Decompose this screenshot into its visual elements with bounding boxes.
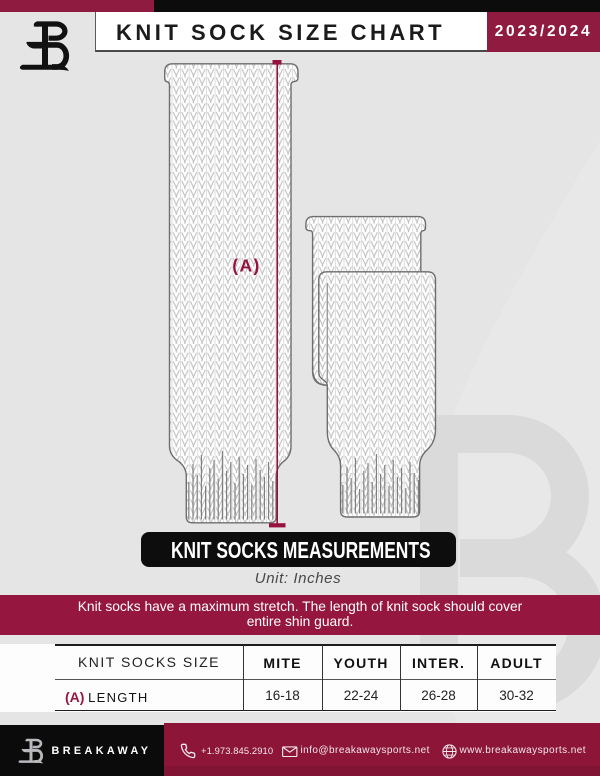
svg-text:(A): (A) <box>232 256 261 276</box>
